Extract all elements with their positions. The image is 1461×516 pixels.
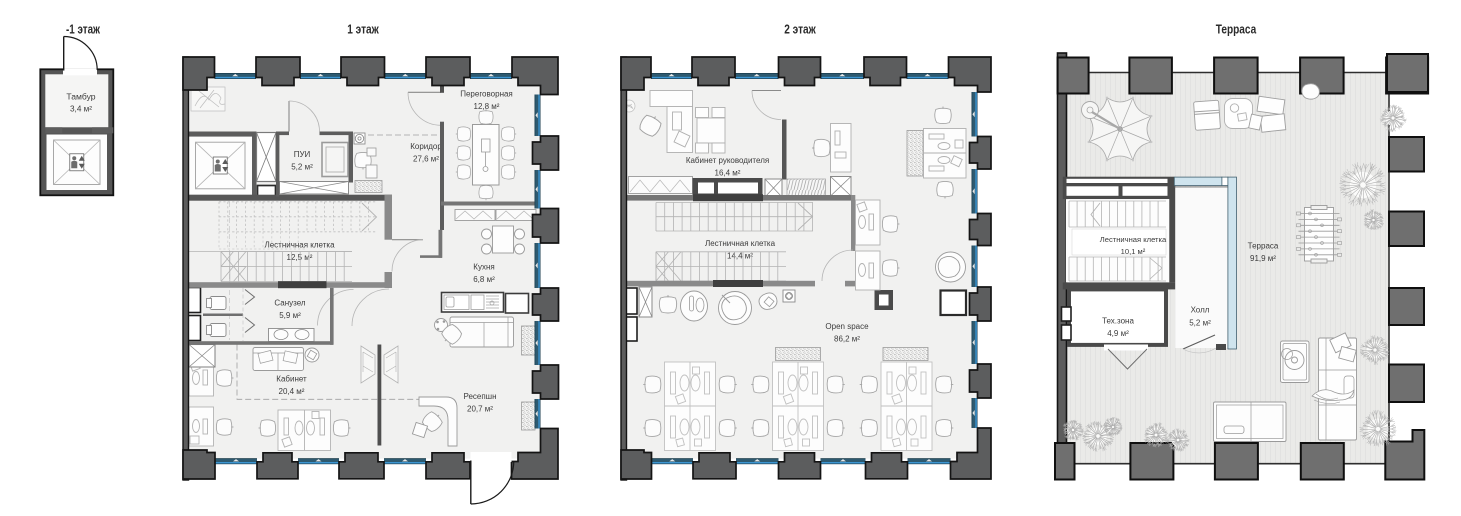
svg-text:86,2 м²: 86,2 м² <box>834 335 860 344</box>
svg-text:Санузел: Санузел <box>274 299 305 308</box>
svg-text:14,4 м²: 14,4 м² <box>727 252 753 261</box>
svg-text:Переговорная: Переговорная <box>460 90 513 99</box>
svg-text:Кабинет: Кабинет <box>276 375 307 384</box>
svg-text:Холл: Холл <box>1191 306 1210 315</box>
svg-text:12,8 м²: 12,8 м² <box>474 102 500 111</box>
svg-text:Ресепшн: Ресепшн <box>463 392 496 401</box>
svg-text:5,2 м²: 5,2 м² <box>1189 319 1211 328</box>
svg-text:Тех.зона: Тех.зона <box>1102 317 1134 326</box>
svg-text:10,1 м²: 10,1 м² <box>1121 247 1146 256</box>
svg-text:3,4 м²: 3,4 м² <box>70 105 92 114</box>
svg-text:20,4 м²: 20,4 м² <box>279 387 305 396</box>
svg-text:Терраса: Терраса <box>1216 21 1257 36</box>
svg-text:91,9 м²: 91,9 м² <box>1250 254 1276 263</box>
svg-text:4,9 м²: 4,9 м² <box>1107 329 1129 338</box>
svg-text:Терраса: Терраса <box>1248 242 1279 251</box>
svg-text:ПУИ: ПУИ <box>294 150 311 159</box>
svg-text:Лестничная клетка: Лестничная клетка <box>264 241 335 250</box>
svg-text:20,7 м²: 20,7 м² <box>467 405 493 414</box>
svg-text:5,2 м²: 5,2 м² <box>291 163 313 172</box>
svg-text:16,4 м²: 16,4 м² <box>715 169 741 178</box>
svg-text:27,6 м²: 27,6 м² <box>413 155 439 164</box>
svg-text:Тамбур: Тамбур <box>66 92 95 102</box>
svg-text:5,9 м²: 5,9 м² <box>279 311 301 320</box>
svg-text:Open space: Open space <box>825 322 869 331</box>
svg-text:Кухня: Кухня <box>473 263 494 272</box>
svg-text:Кабинет руководителя: Кабинет руководителя <box>686 156 769 165</box>
svg-text:Коридор: Коридор <box>410 142 442 151</box>
svg-text:-1 этаж: -1 этаж <box>66 21 100 36</box>
svg-text:Лестничная клетка: Лестничная клетка <box>1100 235 1167 244</box>
svg-text:Лестничная клетка: Лестничная клетка <box>705 239 776 248</box>
svg-text:1 этаж: 1 этаж <box>347 21 379 36</box>
svg-text:6,8 м²: 6,8 м² <box>473 275 495 284</box>
svg-text:2 этаж: 2 этаж <box>784 21 816 36</box>
